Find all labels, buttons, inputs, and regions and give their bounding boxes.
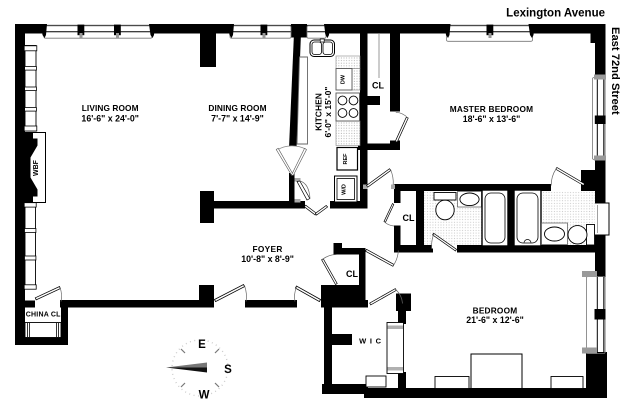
svg-text:DINING ROOM: DINING ROOM — [208, 103, 266, 113]
svg-text:7'-7" x 14'-9": 7'-7" x 14'-9" — [211, 114, 264, 124]
svg-text:16'-6" x 24'-0": 16'-6" x 24'-0" — [81, 114, 139, 124]
svg-text:CL: CL — [346, 269, 358, 279]
svg-text:FOYER: FOYER — [253, 244, 283, 254]
svg-text:21'-6" x 12'-6": 21'-6" x 12'-6" — [466, 315, 524, 325]
svg-text:CL: CL — [372, 81, 384, 91]
svg-text:W: W — [199, 390, 210, 402]
svg-text:REF: REF — [343, 153, 349, 165]
svg-text:W/D: W/D — [342, 184, 348, 195]
svg-text:10'-8" x 8'-9": 10'-8" x 8'-9" — [241, 254, 294, 264]
svg-text:WBF: WBF — [33, 159, 40, 176]
svg-text:Lexington Avenue: Lexington Avenue — [506, 8, 605, 20]
svg-text:MASTER BEDROOM: MASTER BEDROOM — [450, 104, 533, 114]
svg-text:E: E — [198, 339, 206, 351]
svg-text:KITCHEN: KITCHEN — [314, 93, 324, 131]
svg-text:BEDROOM: BEDROOM — [473, 305, 518, 315]
svg-text:W I C: W I C — [359, 336, 382, 345]
svg-text:DW: DW — [341, 74, 347, 84]
svg-text:S: S — [224, 364, 232, 376]
svg-text:CL: CL — [403, 213, 415, 223]
svg-text:18'-6" x 13'-6": 18'-6" x 13'-6" — [463, 114, 521, 124]
svg-text:LIVING ROOM: LIVING ROOM — [82, 103, 139, 113]
svg-text:East 72nd Street: East 72nd Street — [609, 27, 621, 115]
svg-text:6'-0" x 15'-0": 6'-0" x 15'-0" — [323, 87, 333, 138]
svg-text:CHINA CL: CHINA CL — [26, 312, 61, 319]
